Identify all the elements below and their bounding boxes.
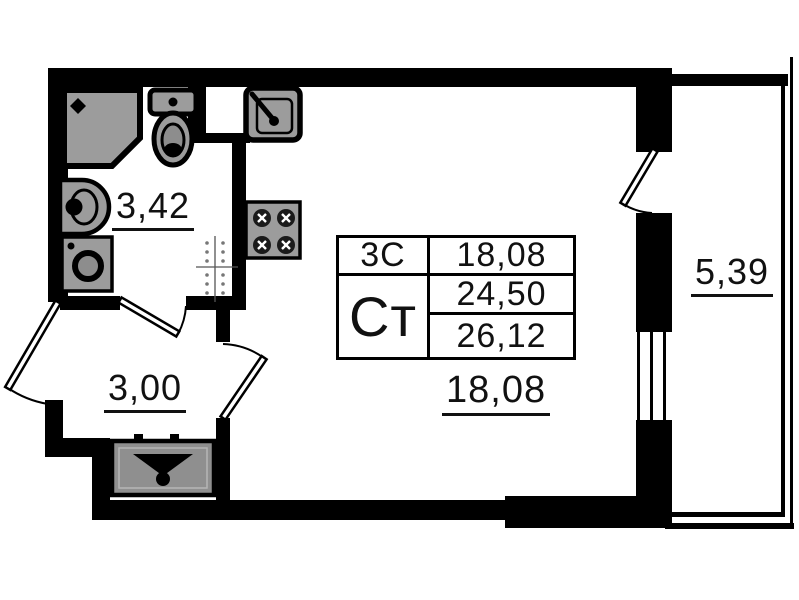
apartment-info-table: 3С Ст 18,08 24,50 26,12 [336, 235, 576, 360]
entrance-door [5, 300, 60, 404]
balcony-door [620, 148, 657, 213]
stove-icon [246, 202, 300, 258]
wall-segment [60, 296, 120, 310]
wall-segment [92, 500, 507, 520]
washbasin-icon [60, 180, 109, 234]
wall-segment [45, 438, 110, 457]
balcony-bottom-outer [665, 523, 794, 529]
door-leaf [620, 148, 657, 205]
shower-icon [64, 90, 140, 166]
wall-segment [186, 296, 246, 310]
wall-segment [216, 308, 230, 342]
kitchen-sink-icon [246, 88, 300, 140]
living-area-cell: 18,08 [430, 238, 573, 276]
wall-segment [636, 87, 672, 152]
door-leaf [118, 297, 179, 336]
wall-segment [188, 133, 250, 143]
door-leaf [221, 356, 267, 420]
rooms-code-cell: 3С [339, 238, 430, 276]
wardrobe-icon [112, 434, 214, 495]
balcony-window [637, 332, 666, 420]
balcony-bottom-inner [672, 512, 781, 517]
bathroom-door [118, 297, 186, 336]
living-room-door [221, 344, 267, 420]
door-swing-arc [8, 388, 48, 404]
wall-segment [636, 213, 672, 332]
area-no-balcony-cell: 24,50 [430, 276, 573, 315]
balcony-right-inner [781, 86, 785, 517]
living-room-area-label: 18,08 [442, 371, 550, 416]
bathroom-area-label: 3,42 [112, 188, 194, 231]
wall-segment [636, 420, 672, 528]
door-swing-arc [223, 344, 264, 358]
door-leaf [5, 300, 60, 389]
balcony-right-outer [790, 57, 793, 529]
toilet-icon [150, 90, 196, 165]
total-area-cell: 26,12 [430, 315, 573, 357]
floor-plan: 3,42 3,00 18,08 5,39 3С Ст 18,08 24,50 2… [0, 0, 799, 600]
ventilation-shaft-icon [196, 236, 238, 302]
balcony-area-label: 5,39 [691, 254, 773, 297]
balcony-top-line [672, 74, 788, 86]
wall-segment [48, 68, 672, 87]
apartment-type-cell: Ст [339, 276, 430, 357]
window-line [650, 332, 653, 420]
wall-segment [232, 140, 246, 296]
wall-segment [92, 457, 110, 502]
hallway-area-label: 3,00 [104, 370, 186, 413]
door-swing-arc [178, 306, 186, 334]
door-swing-arc [623, 204, 652, 213]
wall-segment [216, 418, 230, 502]
washing-machine-icon [62, 237, 112, 291]
window-line [637, 332, 640, 420]
window-line [663, 332, 666, 420]
